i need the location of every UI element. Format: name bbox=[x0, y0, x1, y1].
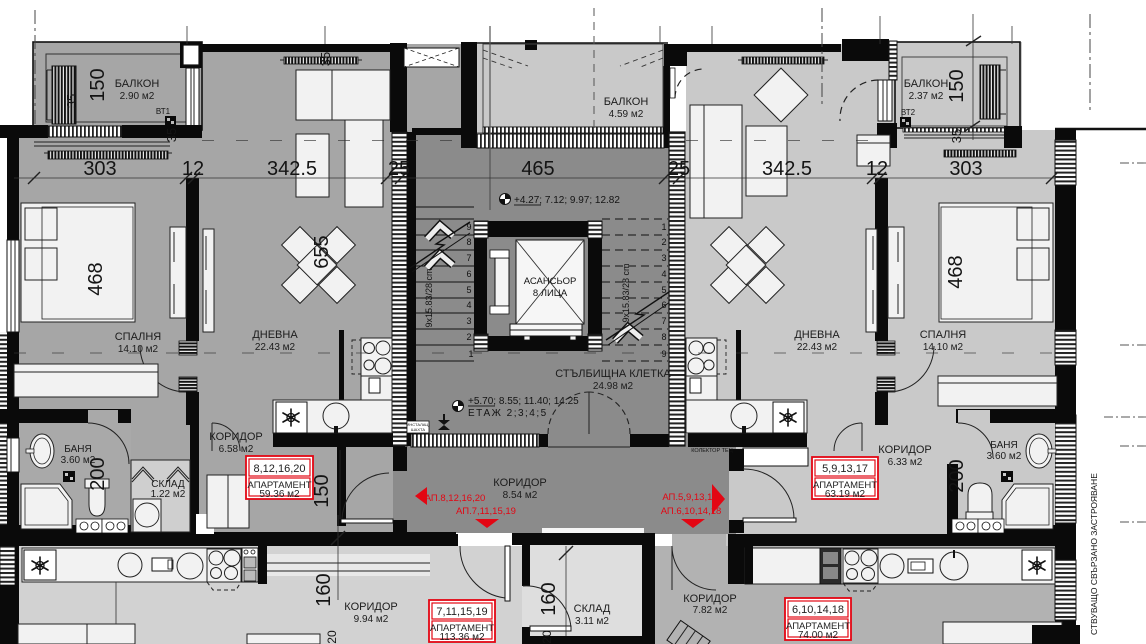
svg-text:303: 303 bbox=[949, 158, 982, 180]
svg-text:35: 35 bbox=[164, 128, 179, 142]
svg-text:303: 303 bbox=[83, 158, 116, 180]
svg-text:4.59 м2: 4.59 м2 bbox=[609, 109, 644, 120]
svg-text:150: 150 bbox=[87, 68, 109, 101]
svg-text:БАНЯ: БАНЯ bbox=[990, 440, 1017, 451]
svg-text:6: 6 bbox=[466, 269, 471, 279]
svg-text:8: 8 bbox=[661, 332, 666, 342]
svg-text:5,9,13,17: 5,9,13,17 bbox=[822, 463, 868, 475]
svg-text:25: 25 bbox=[388, 158, 410, 180]
svg-text:4: 4 bbox=[661, 269, 666, 279]
svg-text:1: 1 bbox=[468, 349, 473, 359]
svg-text:63.19 м2: 63.19 м2 bbox=[825, 489, 866, 500]
svg-text:АП.5,9,13,17: АП.5,9,13,17 bbox=[662, 492, 717, 503]
svg-text:КОРИДОР: КОРИДОР bbox=[683, 593, 736, 605]
svg-text:200: 200 bbox=[87, 457, 109, 490]
svg-text:465: 465 bbox=[521, 158, 554, 180]
svg-text:3.60 м2: 3.60 м2 bbox=[987, 451, 1022, 462]
svg-text:35: 35 bbox=[64, 94, 79, 108]
svg-text:6.33 м2: 6.33 м2 bbox=[888, 457, 923, 468]
svg-text:1: 1 bbox=[661, 222, 666, 232]
svg-text:3: 3 bbox=[661, 253, 666, 263]
svg-text:8 ЛИЦА: 8 ЛИЦА bbox=[533, 288, 568, 299]
svg-text:АП.8,12,16,20: АП.8,12,16,20 bbox=[425, 493, 486, 504]
svg-text:200: 200 bbox=[946, 459, 968, 492]
svg-text:113.36 м2: 113.36 м2 bbox=[439, 632, 484, 643]
svg-text:2.37 м2: 2.37 м2 bbox=[909, 91, 944, 102]
svg-text:25: 25 bbox=[668, 158, 690, 180]
svg-text:14.10 м2: 14.10 м2 bbox=[923, 342, 964, 353]
svg-text:ВТ1: ВТ1 bbox=[156, 107, 171, 116]
svg-text:20: 20 bbox=[540, 630, 554, 644]
svg-text:22.43 м2: 22.43 м2 bbox=[797, 342, 838, 353]
svg-text:35: 35 bbox=[318, 52, 333, 66]
svg-text:СТВУВАЩО СВЪРЗАНО ЗАСТРОЯВАНЕ: СТВУВАЩО СВЪРЗАНО ЗАСТРОЯВАНЕ bbox=[1089, 473, 1099, 635]
svg-text:+5.70; 8.55; 11.40; 14.25: +5.70; 8.55; 11.40; 14.25 bbox=[468, 396, 579, 407]
svg-text:35: 35 bbox=[949, 129, 964, 143]
svg-text:1.22 м2: 1.22 м2 bbox=[151, 489, 186, 500]
svg-text:20: 20 bbox=[325, 630, 339, 644]
svg-text:АП.7,11,15,19: АП.7,11,15,19 bbox=[456, 506, 516, 517]
svg-text:6.58 м2: 6.58 м2 bbox=[219, 444, 254, 455]
svg-text:СПАЛНЯ: СПАЛНЯ bbox=[920, 329, 967, 341]
svg-text:СТЪЛБИЩНА КЛЕТКА: СТЪЛБИЩНА КЛЕТКА bbox=[555, 368, 671, 380]
svg-text:КОРИДОР: КОРИДОР bbox=[878, 444, 931, 456]
svg-text:8.54 м2: 8.54 м2 bbox=[503, 490, 538, 501]
svg-text:2: 2 bbox=[466, 332, 471, 342]
svg-text:КОРИДОР: КОРИДОР bbox=[493, 477, 546, 489]
svg-text:3.11 м2: 3.11 м2 bbox=[575, 616, 609, 627]
svg-text:12: 12 bbox=[182, 158, 204, 180]
svg-text:8: 8 bbox=[466, 237, 471, 247]
svg-text:СПАЛНЯ: СПАЛНЯ bbox=[115, 331, 162, 343]
svg-text:2.90 м2: 2.90 м2 bbox=[120, 91, 155, 102]
svg-text:ДНЕВНА: ДНЕВНА bbox=[794, 329, 840, 341]
svg-text:КОРИДОР: КОРИДОР bbox=[209, 431, 262, 443]
svg-text:7,11,15,19: 7,11,15,19 bbox=[436, 606, 487, 618]
svg-text:150: 150 bbox=[311, 474, 333, 507]
svg-text:22.43 м2: 22.43 м2 bbox=[255, 342, 296, 353]
svg-text:3: 3 bbox=[466, 316, 471, 326]
svg-text:АСАНСЬОР: АСАНСЬОР bbox=[524, 276, 577, 287]
svg-text:БАЛКОН: БАЛКОН bbox=[115, 78, 160, 90]
svg-text:КОРИДОР: КОРИДОР bbox=[344, 601, 397, 613]
svg-text:7.82 м2: 7.82 м2 bbox=[693, 605, 728, 616]
svg-text:468: 468 bbox=[85, 262, 107, 295]
svg-text:160: 160 bbox=[313, 573, 335, 606]
svg-text:150: 150 bbox=[946, 69, 968, 102]
svg-text:ДНЕВНА: ДНЕВНА bbox=[252, 329, 298, 341]
svg-text:4: 4 bbox=[466, 300, 471, 310]
svg-text:ЕТАЖ 2;3;4;5: ЕТАЖ 2;3;4;5 bbox=[468, 408, 548, 419]
svg-text:468: 468 bbox=[945, 255, 967, 288]
svg-text:342.5: 342.5 bbox=[267, 158, 317, 180]
svg-text:БАЛКОН: БАЛКОН bbox=[604, 96, 649, 108]
svg-text:7: 7 bbox=[661, 316, 666, 326]
svg-text:9х15.83/28 cm: 9х15.83/28 cm bbox=[621, 263, 631, 322]
svg-text:655: 655 bbox=[311, 235, 333, 268]
svg-text:+4.27; 7.12; 9.97; 12.82: +4.27; 7.12; 9.97; 12.82 bbox=[514, 195, 620, 206]
svg-text:6,10,14,18: 6,10,14,18 bbox=[792, 604, 844, 616]
svg-text:БАЛКОН: БАЛКОН bbox=[904, 78, 949, 90]
svg-text:9х15.83/28 cm: 9х15.83/28 cm bbox=[424, 268, 434, 327]
svg-text:160: 160 bbox=[538, 582, 560, 615]
svg-text:2: 2 bbox=[661, 237, 666, 247]
svg-text:БАНЯ: БАНЯ bbox=[64, 444, 91, 455]
svg-text:24.98 м2: 24.98 м2 bbox=[593, 381, 634, 392]
svg-text:КОЛЕКТОР ТЕЦ: КОЛЕКТОР ТЕЦ bbox=[691, 448, 733, 454]
svg-text:342.5: 342.5 bbox=[762, 158, 812, 180]
svg-text:9.94 м2: 9.94 м2 bbox=[354, 614, 389, 625]
svg-text:74.00 м2: 74.00 м2 bbox=[798, 630, 839, 641]
svg-text:7: 7 bbox=[466, 253, 471, 263]
svg-text:12: 12 bbox=[866, 158, 888, 180]
svg-text:5: 5 bbox=[466, 285, 471, 295]
svg-text:59.36 м2: 59.36 м2 bbox=[259, 489, 300, 500]
svg-text:ШАХТА: ШАХТА bbox=[411, 427, 425, 432]
svg-text:ВТ2: ВТ2 bbox=[901, 108, 916, 117]
svg-text:8,12,16,20: 8,12,16,20 bbox=[254, 463, 306, 475]
svg-text:СКЛАД: СКЛАД bbox=[574, 603, 611, 615]
svg-text:9: 9 bbox=[661, 349, 666, 359]
